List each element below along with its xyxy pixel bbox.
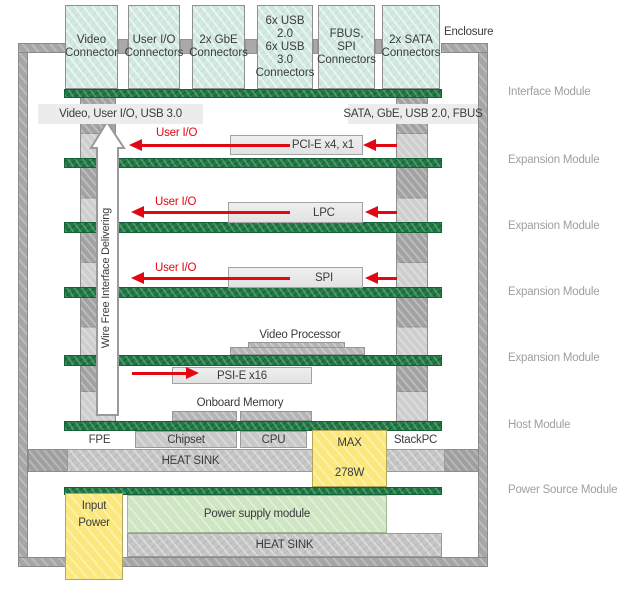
chipset-box: Chipset (135, 431, 237, 448)
onboard-memory-label: Onboard Memory (180, 396, 300, 410)
interface-module-pcb (64, 89, 442, 98)
user-io-arrow-label: User I/O (155, 196, 196, 208)
connector-label-line: 2x GbE (199, 34, 237, 47)
connector-label-line: Connectors (382, 47, 441, 60)
arrow-line (376, 144, 397, 147)
left-arrow-icon (365, 272, 378, 284)
memory-chip (240, 411, 312, 421)
connector-label-line: Connectors (189, 47, 248, 60)
enclosure-label: Enclosure (444, 26, 493, 38)
fbus-spi-connectors-box: FBUS, SPI Connectors (318, 5, 375, 89)
connector-label-line: FBUS, SPI (319, 28, 374, 54)
connector-label-line: Connectors (256, 67, 315, 80)
usb-connectors-box: 6x USB 2.0 6x USB 3.0 Connectors (257, 5, 313, 89)
input-power-line: Power (78, 515, 110, 532)
wire-free-label: Wire Free Interface Delivering (100, 148, 114, 408)
lpc-bus-label: LPC (313, 207, 335, 219)
enclosure-top-right-arm (441, 43, 488, 53)
arrow-line (378, 211, 397, 214)
module-label-expansion-2: Expansion Module (508, 220, 599, 232)
user-io-arrow-label: User I/O (155, 262, 196, 274)
heatsink-enclosure-stub-right (442, 449, 479, 472)
arrow-line (132, 372, 186, 375)
module-label-power-source: Power Source Module (508, 484, 617, 496)
heatsink-enclosure-stub-left (28, 449, 68, 472)
input-power-line: Input (82, 498, 107, 515)
left-bus-label: Video, User I/O, USB 3.0 (38, 104, 203, 124)
stackpc-architecture-diagram: Enclosure Video Connector User I/O Conne… (0, 0, 640, 589)
fpe-label: FPE (64, 431, 135, 448)
memory-chip (172, 411, 237, 421)
module-label-expansion-1: Expansion Module (508, 154, 599, 166)
module-label-expansion-3: Expansion Module (508, 286, 599, 298)
gbe-connectors-box: 2x GbE Connectors (192, 5, 245, 89)
right-bus-label: SATA, GbE, USB 2.0, FBUS (348, 104, 478, 124)
cpu-box: CPU (240, 431, 307, 448)
host-heatsink-label: HEAT SINK (68, 450, 313, 471)
connector-label-line: User I/O (133, 34, 176, 47)
connector-label-line: Video (77, 34, 106, 47)
max-power-line: MAX (337, 437, 361, 449)
video-processor-chip-base (230, 347, 365, 355)
enclosure-left-wall (18, 43, 28, 567)
connector-label-line: Connector (65, 47, 118, 60)
right-arrow-icon (186, 367, 199, 379)
enclosure-right-wall (478, 43, 488, 567)
max-power-box: MAX 278W (312, 430, 387, 487)
module-label-host: Host Module (508, 419, 570, 431)
user-io-arrow-label: User I/O (156, 127, 197, 139)
input-power-box: Input Power (65, 493, 123, 580)
stackpc-label: StackPC (389, 431, 442, 448)
left-arrow-icon (365, 206, 378, 218)
connector-label-line: 6x USB 3.0 (258, 41, 312, 67)
arrow-line (142, 277, 290, 280)
power-supply-module-box: Power supply module (127, 495, 387, 533)
sata-connectors-box: 2x SATA Connectors (382, 5, 440, 89)
arrow-line (140, 144, 290, 147)
video-connector-box: Video Connector (65, 5, 118, 89)
user-io-connectors-box: User I/O Connectors (128, 5, 180, 89)
connector-label-line: 2x SATA (389, 34, 433, 47)
spi-bus-label: SPI (315, 272, 333, 284)
connector-label-line: Connectors (125, 47, 184, 60)
module-label-expansion-4: Expansion Module (508, 352, 599, 364)
arrow-line (378, 277, 397, 280)
connector-label-line: Connectors (317, 54, 376, 67)
module-label-interface: Interface Module (508, 86, 590, 98)
video-processor-label: Video Processor (230, 328, 370, 342)
arrow-line (142, 211, 290, 214)
left-arrow-icon (363, 139, 376, 151)
enclosure-top-left-arm (18, 43, 66, 53)
power-heatsink-bar: HEAT SINK (127, 533, 442, 557)
connector-label-line: 6x USB 2.0 (258, 15, 312, 41)
right-stack-column (396, 98, 428, 421)
pcie-bus-label: PCI-E x4, x1 (292, 139, 354, 151)
host-heatsink-bar: HEAT SINK (67, 449, 445, 472)
max-power-line: 278W (335, 467, 364, 479)
